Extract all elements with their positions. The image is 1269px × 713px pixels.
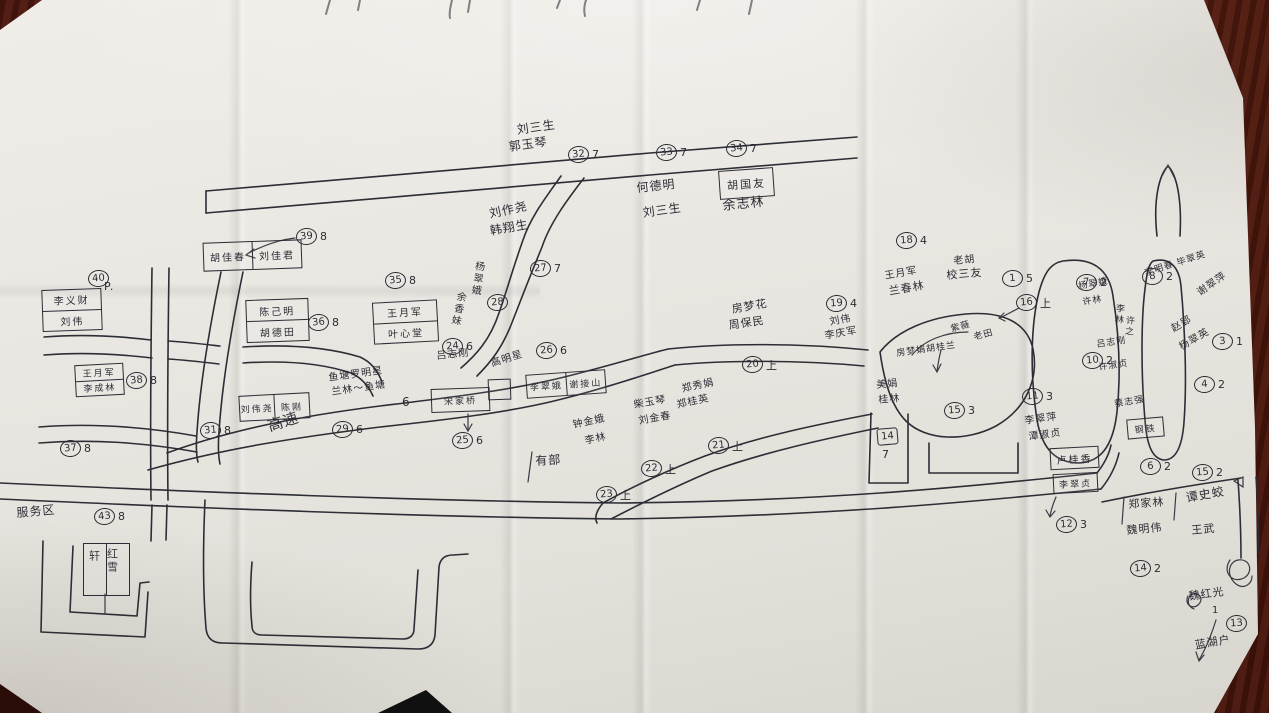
- circled-number-marker: 398: [296, 228, 327, 245]
- name-box-cell: 卢桂香: [1051, 447, 1099, 469]
- marker-suffix: 2: [1100, 276, 1107, 289]
- map-label: 美娟: [876, 379, 899, 391]
- map-label: 有部: [535, 454, 562, 468]
- marker-suffix: 8: [150, 374, 157, 387]
- marker-suffix: 3: [1046, 390, 1053, 403]
- marker-suffix: 2: [1218, 378, 1225, 391]
- name-box: [488, 379, 512, 401]
- pond-structures: [869, 413, 1018, 483]
- circled-number-marker: 347: [726, 140, 757, 157]
- circled-number: 24: [441, 337, 463, 356]
- circled-number: 22: [640, 459, 662, 478]
- circled-number-marker: 62: [1140, 458, 1171, 475]
- name-box-cell: 宋家桥: [432, 388, 490, 412]
- marker-suffix: 上: [665, 461, 676, 477]
- name-box-cell: 李翠娥: [526, 373, 566, 398]
- name-box: 胡佳春刘佳君: [203, 239, 303, 271]
- marker-suffix: 4: [850, 297, 857, 310]
- circled-number: 23: [595, 485, 617, 504]
- marker-suffix: 2: [1164, 460, 1171, 473]
- circled-number: 10: [1081, 351, 1103, 370]
- diagonal-road: [596, 414, 878, 523]
- circled-number: 11: [1021, 387, 1043, 406]
- name-box: 陈己明胡德田: [245, 298, 309, 343]
- marker-suffix: 8: [224, 424, 231, 437]
- circled-number-marker: 82: [1142, 268, 1173, 285]
- map-label: 桂林: [878, 394, 901, 406]
- name-box-cell: 李义财: [42, 289, 101, 311]
- circled-number-marker: 438: [94, 508, 125, 525]
- bottom-right-block: [1102, 477, 1258, 661]
- circled-number: 16: [1015, 293, 1037, 312]
- circled-number-marker: 358: [385, 272, 416, 289]
- circled-number: 7: [1075, 273, 1097, 292]
- name-box: 卢桂香: [1049, 446, 1099, 471]
- name-box-cell: [489, 380, 511, 400]
- circled-number: 13: [1225, 614, 1247, 633]
- circled-number: 38: [125, 371, 147, 390]
- marker-suffix: 2: [1154, 562, 1161, 575]
- name-box: 刘伟尧陈刚: [238, 392, 310, 422]
- circled-number-marker: 21上: [708, 437, 743, 454]
- name-box-cell: 胡佳春: [204, 242, 253, 271]
- circled-number-marker: 22上: [641, 460, 676, 477]
- circled-number: 33: [655, 143, 677, 162]
- circled-number: 35: [384, 271, 406, 290]
- circled-number-marker: 14: [877, 428, 898, 445]
- marker-suffix: 7: [592, 148, 599, 161]
- marker-suffix: 7: [554, 262, 561, 275]
- marker-suffix: 6: [466, 340, 473, 353]
- circled-number: 25: [451, 431, 473, 450]
- circled-number-marker: 113: [1022, 388, 1053, 405]
- circled-number-marker: 72: [1076, 274, 1107, 291]
- marker-suffix: 1: [1236, 335, 1243, 348]
- circled-number-marker: 388: [126, 372, 157, 389]
- circled-number: 8: [1141, 267, 1163, 286]
- circled-number-marker: 28: [487, 294, 508, 311]
- marker-suffix: 7: [750, 142, 757, 155]
- name-box-cell: 刘伟: [43, 308, 102, 331]
- marker-suffix: 上: [766, 357, 777, 373]
- map-label: 王武: [1191, 523, 1216, 537]
- circled-number: 18: [895, 231, 917, 250]
- name-box-cell: 李成林: [76, 378, 124, 396]
- circled-number: 37: [59, 439, 81, 458]
- map-label: 许之: [1122, 315, 1133, 338]
- marker-suffix: 8: [84, 442, 91, 455]
- circled-number-marker: 327: [568, 146, 599, 163]
- circled-number-marker: 142: [1130, 560, 1161, 577]
- marker-suffix: 8: [118, 510, 125, 523]
- map-label: 魏明伟: [1126, 522, 1163, 537]
- marker-suffix: 上: [620, 487, 631, 503]
- circled-number-marker: 277: [530, 260, 561, 277]
- marker-suffix: 上: [732, 438, 743, 454]
- circled-number-marker: 153: [944, 402, 975, 419]
- marker-suffix: 2: [1106, 354, 1113, 367]
- circled-number-marker: 378: [60, 440, 91, 457]
- name-box: 宋家桥: [431, 387, 491, 413]
- circled-number: 14: [1129, 559, 1151, 578]
- name-box: 胡国友: [718, 167, 775, 200]
- name-box-cell: 钢铁: [1127, 418, 1163, 439]
- circled-number: 40: [87, 269, 109, 288]
- circled-number-marker: 296: [332, 421, 363, 438]
- boxed-number: 14: [876, 427, 898, 446]
- map-label: 1: [1212, 606, 1219, 617]
- circled-number: 28: [486, 293, 508, 312]
- marker-suffix: 8: [320, 230, 327, 243]
- name-box-cell: 胡国友: [719, 168, 774, 199]
- circled-number-marker: 337: [656, 144, 687, 161]
- name-box: 钢铁: [1126, 416, 1165, 439]
- marker-suffix: 4: [920, 234, 927, 247]
- circled-number: 31: [199, 421, 221, 440]
- circled-number: 26: [535, 341, 557, 360]
- name-box-cell: 胡德田: [247, 319, 309, 342]
- circled-number-marker: 152: [1192, 464, 1223, 481]
- circled-number-marker: 20上: [742, 356, 777, 373]
- circled-number-marker: 318: [200, 422, 231, 439]
- hand-drawn-map-ink: [0, 0, 1269, 713]
- circled-number: 15: [943, 401, 965, 420]
- marker-suffix: 3: [968, 404, 975, 417]
- circled-number-marker: 184: [896, 232, 927, 249]
- marker-suffix: 5: [1026, 272, 1033, 285]
- circled-number-marker: 42: [1194, 376, 1225, 393]
- circled-number: 12: [1055, 515, 1077, 534]
- marker-suffix: 8: [409, 274, 416, 287]
- map-label: 郑家林: [1128, 496, 1165, 510]
- marker-suffix: 6: [560, 344, 567, 357]
- circled-number: 32: [567, 145, 589, 164]
- marker-suffix: 8: [332, 316, 339, 329]
- circled-number: 39: [295, 227, 317, 246]
- circled-number: 27: [529, 259, 551, 278]
- circled-number-marker: 31: [1212, 333, 1243, 350]
- name-box-cell: [106, 544, 129, 595]
- map-label: 6: [402, 396, 411, 409]
- circled-number-marker: 368: [308, 314, 339, 331]
- circled-number: 21: [707, 436, 729, 455]
- name-box-cell: 谢接山: [565, 370, 606, 395]
- circled-number: 29: [331, 420, 353, 439]
- name-box: [83, 543, 130, 596]
- circled-number: 6: [1139, 457, 1161, 476]
- photo-of-hand-drawn-map: 刘三生郭玉琴何德明刘三生余志林刘作尧韩翔生杨翠娥余香妹吕志刚高明星鱼塘罗明星兰林…: [0, 0, 1269, 713]
- marker-suffix: 3: [1080, 518, 1087, 531]
- marker-suffix: 2: [1216, 466, 1223, 479]
- marker-suffix: 6: [356, 423, 363, 436]
- circled-number: 3: [1211, 332, 1233, 351]
- cropped-title-strokes: [326, 0, 752, 18]
- circled-number-marker: 23上: [596, 486, 631, 503]
- marker-suffix: 7: [680, 146, 687, 159]
- map-label: 老胡: [953, 255, 976, 267]
- name-box-cell: 陈己明: [246, 299, 308, 321]
- circled-number-marker: 40: [88, 270, 109, 287]
- map-label: 7: [882, 449, 890, 461]
- circled-number-marker: 194: [826, 295, 857, 312]
- name-box-cell: 叶心堂: [374, 320, 438, 344]
- name-box-cell: 刘佳君: [252, 240, 302, 269]
- circled-number-marker: 102: [1082, 352, 1113, 369]
- marker-suffix: 6: [476, 434, 483, 447]
- circled-number-marker: 16上: [1016, 294, 1051, 311]
- name-box-cell: 李翠贞: [1054, 473, 1098, 493]
- circled-number: 19: [825, 294, 847, 313]
- circled-number: 1: [1001, 269, 1023, 288]
- name-box-cell: [84, 544, 106, 595]
- name-box: 王月军叶心堂: [372, 299, 439, 344]
- circled-number-marker: 15: [1002, 270, 1033, 287]
- circled-number: 43: [93, 507, 115, 526]
- name-box: 王月军李成林: [74, 363, 125, 398]
- map-label: 校三友: [946, 267, 983, 282]
- circled-number-marker: 246: [442, 338, 473, 355]
- north-arrow: [1156, 165, 1181, 236]
- map-label: 李林: [1112, 303, 1123, 326]
- marker-suffix: 2: [1166, 270, 1173, 283]
- name-box-cell: 刘伟尧: [239, 395, 274, 421]
- circled-number: 15: [1191, 463, 1213, 482]
- circled-number: 34: [725, 139, 747, 158]
- circled-number-marker: 256: [452, 432, 483, 449]
- name-box-cell: 陈刚: [273, 393, 309, 419]
- circled-number-marker: 123: [1056, 516, 1087, 533]
- marker-suffix: 上: [1040, 295, 1051, 311]
- circled-number-marker: 266: [536, 342, 567, 359]
- circled-number: 20: [741, 355, 763, 374]
- name-box: 李义财刘伟: [41, 288, 102, 332]
- circled-number: 36: [307, 313, 329, 332]
- circled-number-marker: 13: [1226, 615, 1247, 632]
- name-box: 李翠贞: [1053, 472, 1099, 494]
- circled-number: 4: [1193, 375, 1215, 394]
